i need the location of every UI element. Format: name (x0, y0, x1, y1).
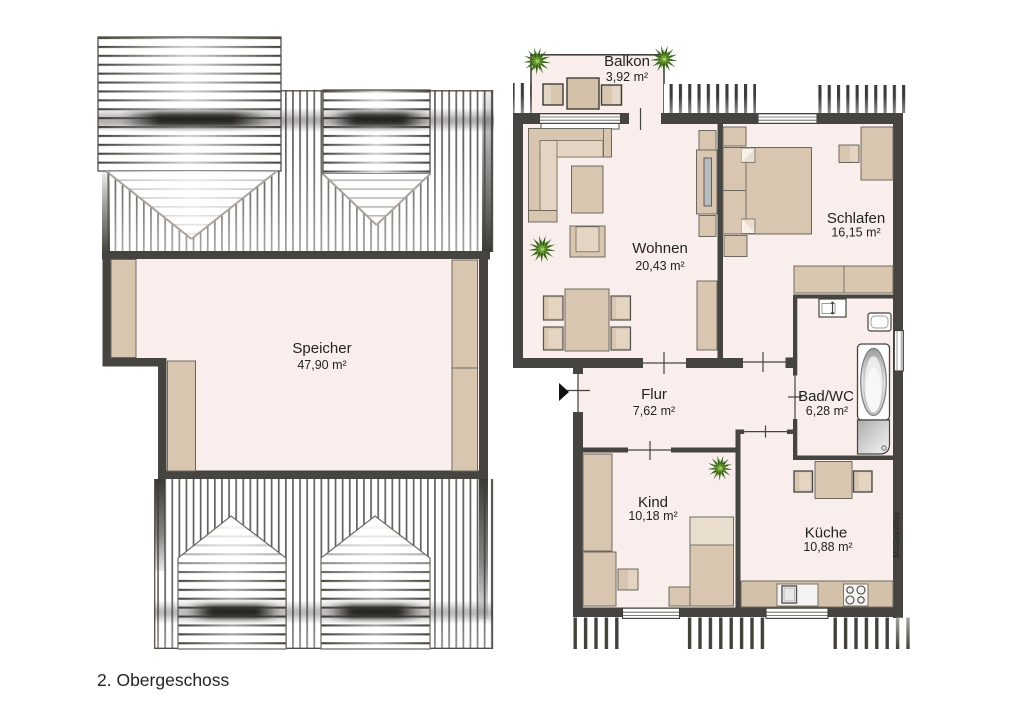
svg-text:McGrundriss: McGrundriss (892, 512, 901, 557)
svg-text:Speicher: Speicher (292, 340, 351, 357)
svg-text:3,92 m²: 3,92 m² (606, 70, 648, 84)
svg-text:2. Obergeschoss: 2. Obergeschoss (97, 670, 230, 690)
svg-text:Flur: Flur (641, 386, 667, 403)
svg-text:Balkon: Balkon (604, 53, 650, 70)
svg-text:Küche: Küche (805, 525, 848, 542)
svg-text:Schlafen: Schlafen (827, 210, 885, 227)
svg-text:6,28 m²: 6,28 m² (806, 404, 848, 418)
svg-text:Bad/WC: Bad/WC (798, 388, 854, 405)
svg-text:10,18 m²: 10,18 m² (628, 509, 677, 523)
svg-text:10,88 m²: 10,88 m² (803, 540, 852, 554)
svg-text:20,43 m²: 20,43 m² (635, 259, 684, 273)
svg-text:7,62 m²: 7,62 m² (633, 404, 675, 418)
svg-text:47,90 m²: 47,90 m² (297, 358, 346, 372)
svg-text:16,15 m²: 16,15 m² (831, 226, 880, 240)
svg-text:Wohnen: Wohnen (632, 240, 688, 257)
